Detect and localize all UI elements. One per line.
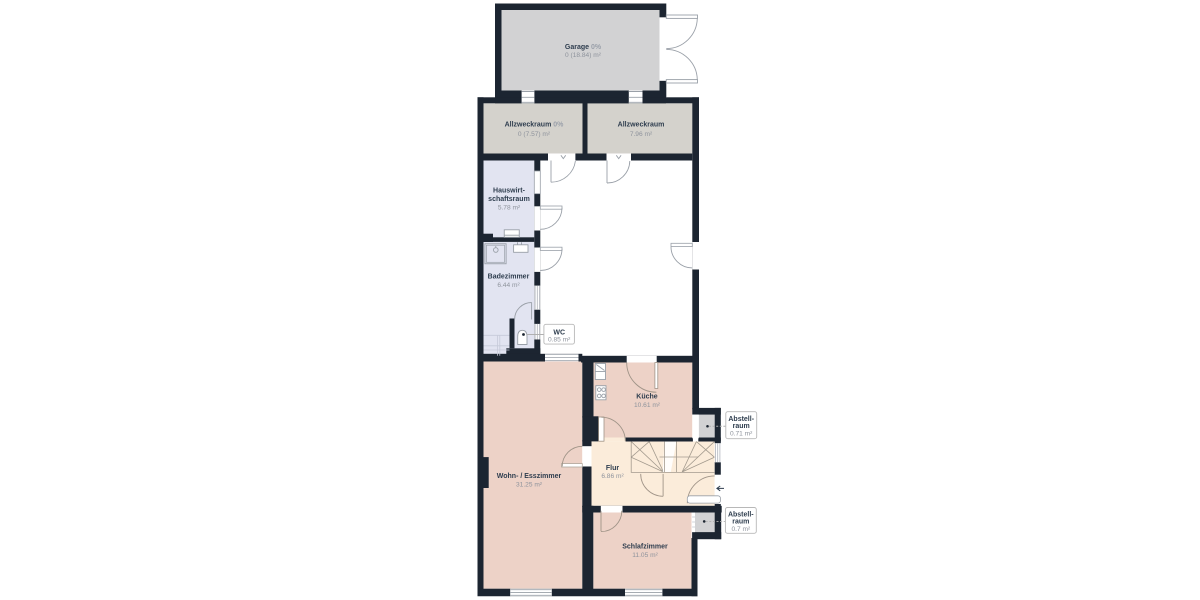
svg-text:Allzweckraum: Allzweckraum: [618, 122, 665, 129]
svg-text:raum: raum: [733, 423, 750, 430]
svg-text:Badezimmer: Badezimmer: [488, 274, 530, 281]
svg-text:11.05 m²: 11.05 m²: [632, 552, 658, 559]
svg-text:Abstell-: Abstell-: [728, 416, 754, 423]
svg-text:6.44 m²: 6.44 m²: [497, 282, 520, 289]
svg-text:raum: raum: [732, 519, 749, 526]
svg-text:0 (18.84) m²: 0 (18.84) m²: [565, 52, 602, 59]
svg-text:0.71 m²: 0.71 m²: [730, 431, 753, 438]
svg-text:7.96 m²: 7.96 m²: [630, 131, 653, 138]
svg-text:Hauswirt-: Hauswirt-: [493, 188, 526, 195]
svg-text:10.61 m²: 10.61 m²: [634, 402, 661, 409]
svg-text:Schlafzimmer: Schlafzimmer: [622, 544, 668, 551]
svg-text:0 (7.57) m²: 0 (7.57) m²: [518, 131, 551, 138]
svg-text:schaftsraum: schaftsraum: [488, 196, 530, 203]
svg-text:0.85 m²: 0.85 m²: [548, 337, 571, 344]
svg-text:6.86 m²: 6.86 m²: [601, 473, 624, 480]
svg-text:Flur: Flur: [606, 465, 619, 472]
svg-text:Wohn- / Esszimmer: Wohn- / Esszimmer: [497, 473, 562, 480]
svg-text:0.7 m²: 0.7 m²: [731, 526, 750, 533]
svg-text:WC: WC: [553, 329, 565, 336]
svg-text:Garage 0%: Garage 0%: [565, 44, 602, 51]
svg-text:31.25 m²: 31.25 m²: [516, 482, 543, 489]
svg-text:5.78 m²: 5.78 m²: [498, 205, 521, 212]
svg-text:Allzweckraum 0%: Allzweckraum 0%: [505, 122, 565, 129]
svg-text:Abstell-: Abstell-: [728, 511, 754, 518]
svg-text:Küche: Küche: [636, 394, 658, 401]
